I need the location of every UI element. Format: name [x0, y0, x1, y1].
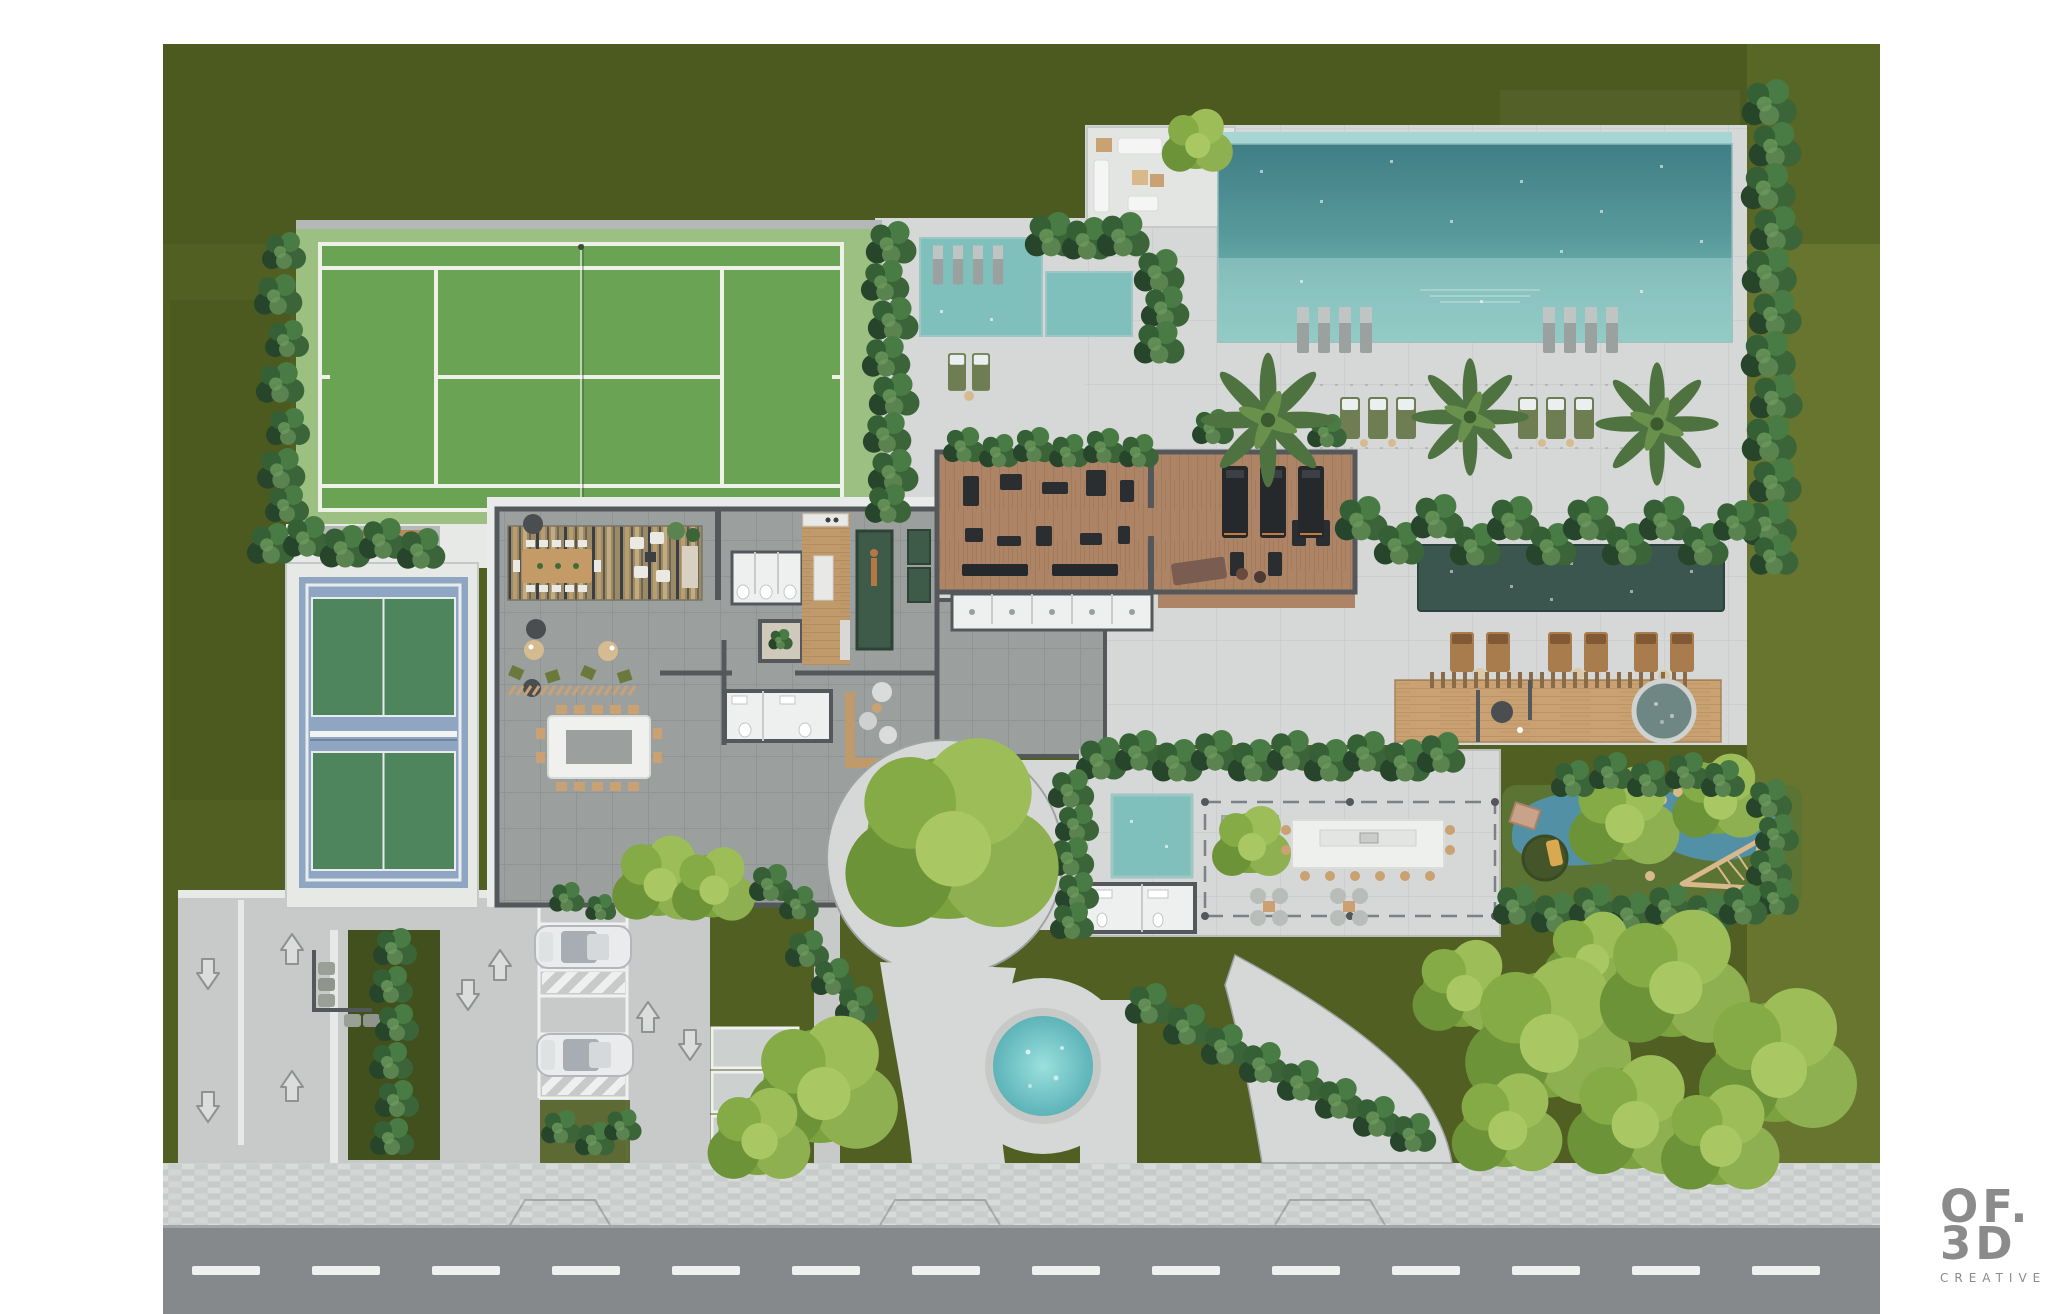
pickleball-court: [286, 563, 478, 908]
car: [537, 1034, 633, 1076]
console: [682, 546, 698, 588]
logo-text: CREATIVE: [1940, 1271, 2050, 1285]
bbq-spa-pool: [1112, 795, 1192, 877]
hatched-zone: [542, 1074, 625, 1095]
palm-tree: [1201, 353, 1335, 487]
bbq-restrooms: [1085, 884, 1195, 932]
copper-shower: [871, 558, 877, 586]
plant: [686, 528, 700, 542]
dumbbell-rack: [962, 564, 1028, 576]
sauna-room: [857, 531, 892, 649]
restroom-block-1: [732, 552, 802, 604]
bbq-terrace: [1080, 750, 1500, 936]
kitchen-island: [814, 556, 833, 600]
hatched-zone: [542, 972, 625, 993]
outdoor-sofa: [1118, 138, 1162, 154]
pouf: [526, 619, 546, 639]
hot-tub: [1634, 681, 1694, 741]
palm-tree: [1411, 358, 1529, 476]
medicine-ball: [1236, 568, 1248, 580]
site-plan-rendering: [0, 0, 2054, 1314]
outdoor-sofa: [1094, 160, 1109, 212]
car: [535, 926, 631, 968]
page: { "logo": { "line1": "OF.", "line2": "3D…: [0, 0, 2054, 1314]
shower-stalls: [952, 594, 1152, 630]
pouf: [523, 514, 543, 534]
massage-table: [908, 530, 930, 564]
logo-mark-line2: 3D: [1940, 1225, 2050, 1262]
sidewalk: [163, 1163, 1880, 1225]
plant: [667, 522, 685, 540]
kids-pool-2: [1046, 272, 1132, 336]
gym: [937, 452, 1355, 630]
massage-table: [908, 568, 930, 602]
party-table: [536, 705, 662, 791]
play-mound: [1523, 836, 1567, 880]
plunge-pool: [989, 1012, 1097, 1120]
dumbbell-rack: [1052, 564, 1118, 576]
restroom-block-2: [725, 691, 831, 741]
kitchen: [802, 513, 850, 665]
kids-pool: [920, 238, 1042, 336]
main-pool: [1218, 132, 1732, 353]
logo: OF. 3D CREATIVE: [1940, 1188, 2050, 1285]
medicine-ball: [1254, 571, 1266, 583]
inner-courtyard: [760, 621, 802, 661]
palm-tree: [1595, 362, 1718, 485]
